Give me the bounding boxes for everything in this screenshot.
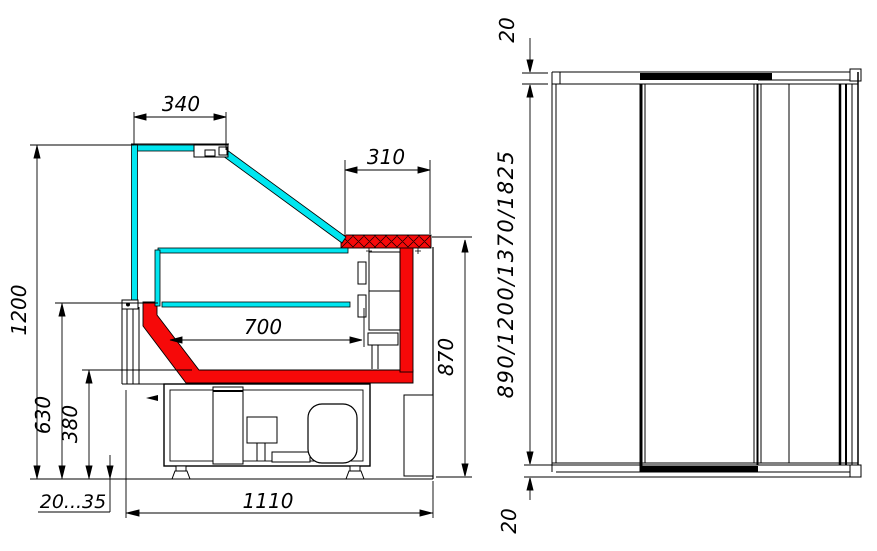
arrowhead (34, 146, 40, 158)
dim-canopy-depth-label: 340 (162, 92, 200, 116)
dim-counter-height: 870 (432, 237, 472, 477)
mounting-block (272, 452, 310, 462)
rear-clip-lower (358, 295, 366, 317)
countertop-screw-right (415, 248, 421, 254)
rear-column-red (400, 247, 413, 372)
dim-bottom-panel-label: 20 (497, 508, 521, 533)
section-view (122, 144, 433, 479)
arrowhead (527, 452, 533, 464)
glass-holder-screw (127, 303, 130, 306)
dim-body-heights: 890/1200/1370/1825 (494, 85, 533, 464)
arrowhead (418, 167, 430, 173)
dim-foot-adjust-label: 20...35 (40, 491, 106, 513)
arrowhead (86, 466, 92, 478)
dim-overall-depth-label: 1110 (243, 489, 294, 513)
bottom-bar-thick (640, 466, 758, 472)
arrowhead (107, 466, 113, 478)
arrowhead (350, 337, 362, 343)
side-dimensions: 20 890/1200/1370/1825 20 (494, 17, 548, 533)
top-bar-thick (640, 73, 772, 80)
condenser-panel (213, 387, 243, 464)
arrowhead (462, 464, 468, 476)
countertop-red (341, 235, 431, 248)
compressor (308, 404, 357, 463)
technical-drawing-canvas: 340 310 1200 630 380 (0, 0, 877, 551)
dim-well-height-label: 630 (31, 396, 55, 434)
foot-left-stem (176, 466, 186, 471)
arrowhead (86, 371, 92, 383)
arrowhead (127, 510, 139, 516)
dim-countertop-depth: 310 (345, 145, 430, 234)
top-right-cap (850, 69, 861, 81)
well-bottom-glass (162, 302, 350, 307)
arrowhead (59, 466, 65, 478)
sloped-front-glass (223, 150, 346, 243)
foot-right-stem (350, 466, 360, 471)
well-shelf-glass (158, 248, 348, 253)
arrowhead (214, 114, 226, 120)
dim-foot-adjust: 20...35 (38, 455, 113, 513)
arrowhead (527, 478, 533, 490)
dim-top-panel: 20 (495, 17, 548, 84)
dim-bottom-panel: 20 (497, 478, 533, 534)
dim-countertop-depth-label: 310 (367, 145, 405, 169)
foot-left-base (172, 471, 190, 479)
arrowhead (420, 510, 432, 516)
arrowhead (527, 60, 533, 72)
well-left-glass (155, 250, 160, 306)
drawing-page: 340 310 1200 630 380 (0, 0, 877, 551)
arrowhead (34, 466, 40, 478)
machine-compartment (146, 384, 370, 479)
dim-overall-height-label: 1200 (7, 285, 31, 336)
arrowhead (134, 114, 146, 120)
dim-counter-height-label: 870 (434, 338, 458, 376)
dim-top-panel-label: 20 (495, 17, 519, 42)
dim-well-width: 700 (170, 308, 364, 347)
arrowhead (345, 167, 357, 173)
foot-right-base (346, 471, 364, 479)
dim-well-width-label: 700 (244, 315, 282, 339)
dim-body-heights-label: 890/1200/1370/1825 (494, 150, 518, 399)
control-box (247, 417, 277, 443)
arrowhead (462, 240, 468, 252)
rear-lower-panel (404, 395, 433, 476)
rear-clip-upper (358, 262, 366, 284)
glass-panels (132, 145, 351, 307)
bottom-right-step (850, 465, 861, 477)
arrowhead (527, 85, 533, 97)
front-left-glass (132, 145, 138, 307)
rear-bracket (368, 333, 398, 345)
arrowhead (59, 304, 65, 316)
dim-base-height-label: 380 (58, 405, 82, 443)
dim-canopy-depth: 340 (134, 92, 226, 150)
side-view (524, 69, 861, 477)
airflow-arrow (146, 395, 158, 401)
